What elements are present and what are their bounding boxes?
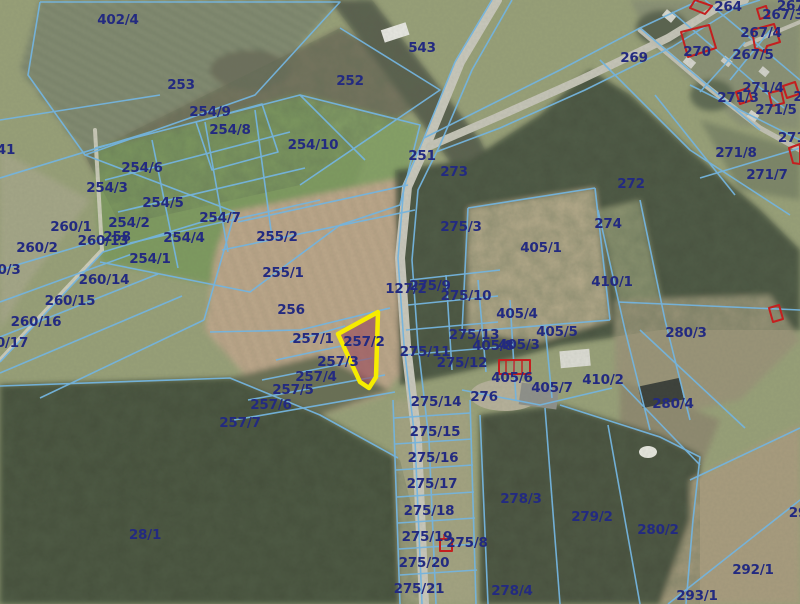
map-canvas[interactable] [0, 0, 800, 604]
aerial-photo-layer [0, 0, 800, 604]
photo-grain [0, 0, 800, 604]
map-viewport[interactable]: 402/4253254/9254/8254/10252543264267/267… [0, 0, 800, 604]
